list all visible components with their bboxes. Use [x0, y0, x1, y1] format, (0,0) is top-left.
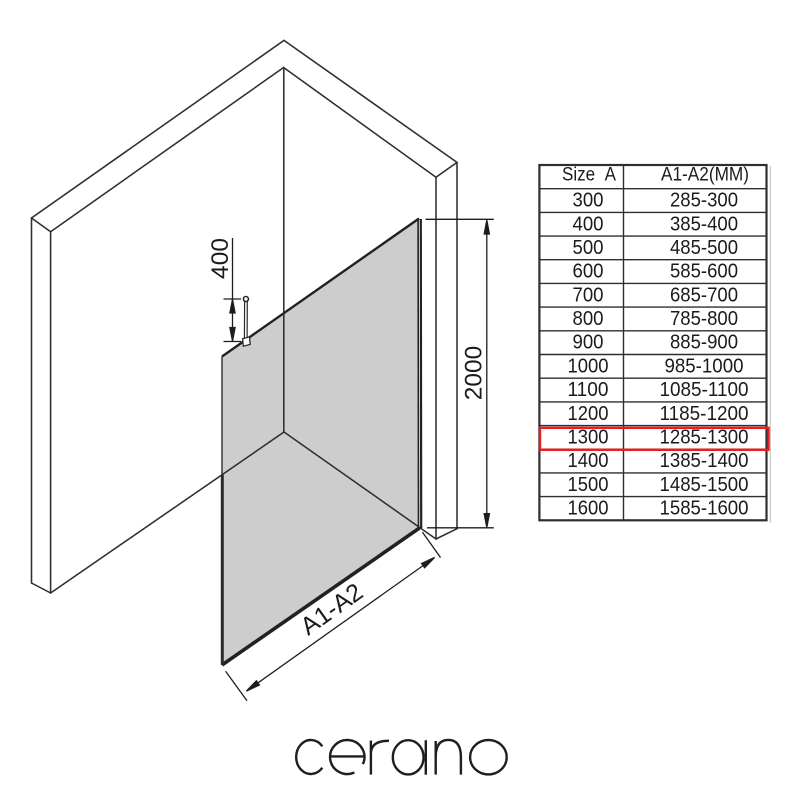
svg-text:1500: 1500	[568, 474, 609, 496]
svg-text:1385-1400: 1385-1400	[660, 450, 749, 472]
svg-text:1600: 1600	[568, 498, 609, 520]
svg-text:485-500: 485-500	[670, 237, 738, 259]
svg-text:300: 300	[573, 190, 604, 212]
svg-text:1585-1600: 1585-1600	[660, 498, 749, 520]
svg-text:800: 800	[573, 308, 604, 330]
svg-text:1100: 1100	[568, 379, 609, 401]
svg-text:585-600: 585-600	[670, 261, 738, 283]
svg-text:A1-A2(MM): A1-A2(MM)	[661, 165, 749, 186]
svg-text:1085-1100: 1085-1100	[660, 379, 749, 401]
svg-text:285-300: 285-300	[670, 190, 738, 212]
svg-text:900: 900	[573, 332, 604, 354]
svg-text:885-900: 885-900	[670, 332, 738, 354]
svg-text:1285-1300: 1285-1300	[660, 427, 749, 449]
svg-text:1000: 1000	[568, 355, 609, 377]
svg-text:1400: 1400	[568, 450, 609, 472]
svg-text:1200: 1200	[568, 403, 609, 425]
svg-text:385-400: 385-400	[670, 213, 738, 235]
svg-text:600: 600	[573, 261, 604, 283]
svg-text:1185-1200: 1185-1200	[660, 403, 749, 425]
svg-text:400: 400	[573, 213, 604, 235]
svg-text:685-700: 685-700	[670, 284, 738, 306]
svg-text:1300: 1300	[568, 427, 609, 449]
svg-text:785-800: 785-800	[670, 308, 738, 330]
svg-text:1485-1500: 1485-1500	[660, 474, 749, 496]
svg-text:500: 500	[573, 237, 604, 259]
svg-text:Size A: Size A	[562, 165, 616, 186]
svg-text:2000: 2000	[461, 346, 488, 401]
svg-text:700: 700	[573, 284, 604, 306]
svg-text:400: 400	[207, 238, 234, 279]
svg-text:985-1000: 985-1000	[665, 355, 744, 377]
